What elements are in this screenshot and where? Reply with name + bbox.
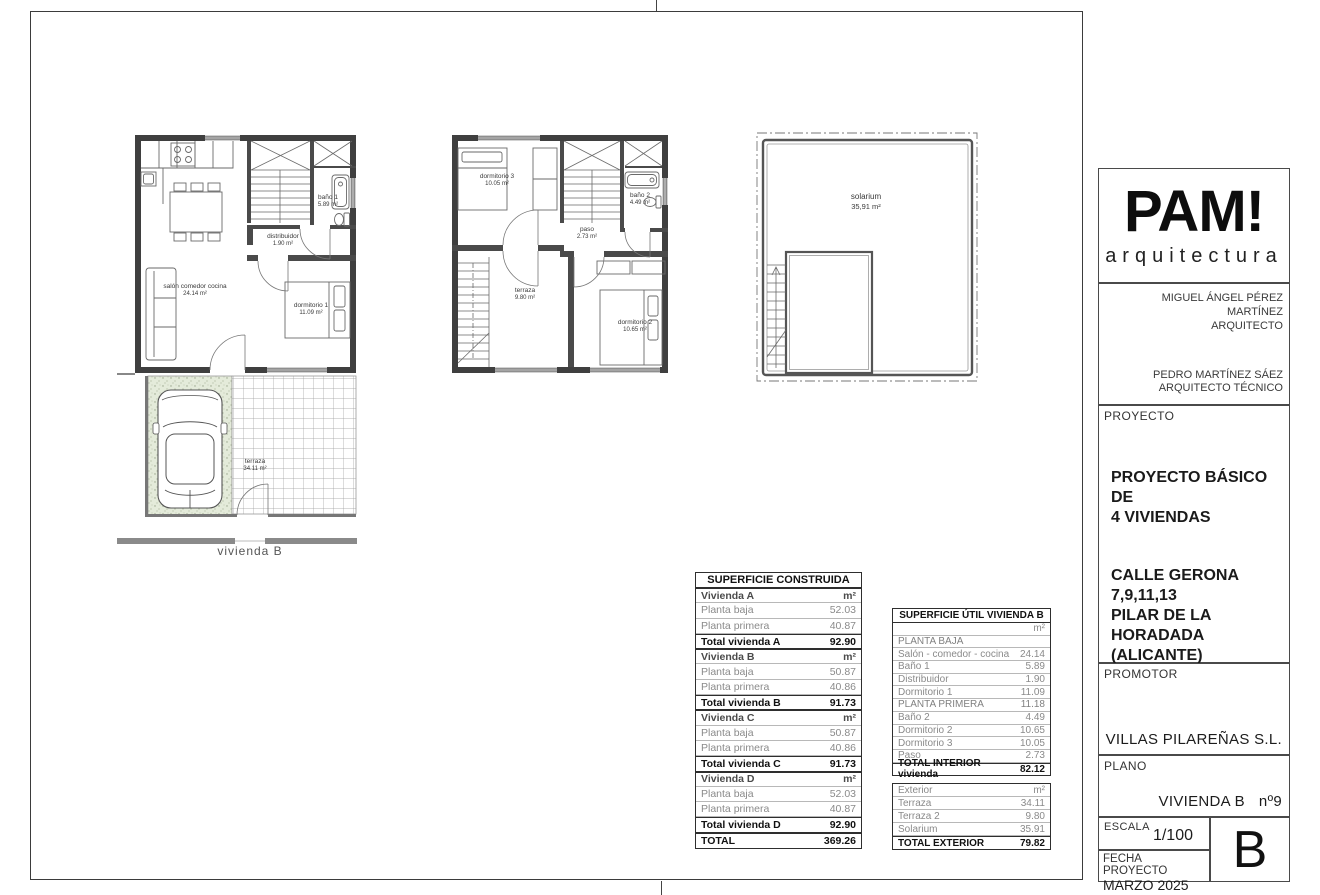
row-label: Planta primera xyxy=(701,681,769,693)
hatch-box xyxy=(625,141,662,166)
proyecto-content: PROYECTO BÁSICO DE 4 VIVIENDAS CALLE GER… xyxy=(1111,468,1289,666)
row-label: Vivienda C xyxy=(701,712,755,724)
row-label: Vivienda D xyxy=(701,773,755,785)
solarium-plan xyxy=(750,125,985,390)
table-row: Planta baja50.87 xyxy=(696,664,861,679)
exterior-walls xyxy=(135,135,356,373)
row-label: Planta baja xyxy=(701,788,754,800)
floor-plan-planta-baja xyxy=(113,128,373,560)
kitchen-counter xyxy=(141,141,233,204)
row-value: 92.90 xyxy=(830,819,856,831)
promotor-value: VILLAS PILAREÑAS S.L. xyxy=(1106,731,1282,748)
row-label: PLANTA PRIMERA xyxy=(898,699,984,710)
proyecto-label: PROYECTO xyxy=(1104,409,1174,423)
stair-void xyxy=(786,252,872,373)
row-value: m² xyxy=(843,651,856,663)
room-label-distribuidor: distribuidor 1.90 m² xyxy=(248,233,318,248)
table-row: Vivienda Cm² xyxy=(696,710,861,725)
row-label: Planta primera xyxy=(701,803,769,815)
table-row: TOTAL EXTERIOR79.82 xyxy=(893,836,1050,849)
address-line: CALLE GERONA xyxy=(1111,566,1289,586)
table-row: Terraza34.11 xyxy=(893,797,1050,810)
table-row: Solarium35.91 xyxy=(893,823,1050,836)
row-value: m² xyxy=(1033,785,1045,796)
address-line: 7,9,11,13 xyxy=(1111,586,1289,606)
plan-caption-vivienda-b: vivienda B xyxy=(195,544,305,558)
table-superficie-construida: SUPERFICIE CONSTRUIDA Vivienda Am² Plant… xyxy=(695,572,862,849)
tiled-terrace xyxy=(232,376,356,514)
table-row: TOTAL369.26 xyxy=(696,833,861,848)
table-title: SUPERFICIE ÚTIL VIVIENDA B xyxy=(893,609,1050,623)
row-label: Total vivienda B xyxy=(701,697,781,709)
stairs xyxy=(564,141,620,223)
row-value: 34.11 xyxy=(1021,798,1045,809)
escala-box: ESCALA 1/100 xyxy=(1098,817,1210,850)
row-value: 40.86 xyxy=(830,681,856,693)
row-value: 35.91 xyxy=(1020,824,1045,835)
row-value: 369.26 xyxy=(824,835,856,847)
table-row: Vivienda Dm² xyxy=(696,772,861,787)
car-drawing xyxy=(153,390,227,508)
row-label: Distribuidor xyxy=(898,674,949,685)
row-value: m² xyxy=(1033,623,1045,634)
room-label-bano2: baño 2 4.49 m² xyxy=(605,192,675,207)
table-row: Terraza 29.80 xyxy=(893,810,1050,823)
row-label: Terraza xyxy=(898,798,931,809)
promotor-box: PROMOTOR VILLAS PILAREÑAS S.L. xyxy=(1098,663,1290,755)
row-label: Planta baja xyxy=(701,727,754,739)
table-row: Dormitorio 310.05 xyxy=(893,737,1050,750)
fecha-value: MARZO 2025 xyxy=(1103,877,1205,893)
row-value: 40.86 xyxy=(830,742,856,754)
table-row: PLANTA PRIMERA11.18 xyxy=(893,699,1050,712)
architects-box: MIGUEL ÁNGEL PÉREZ MARTÍNEZ ARQUITECTO P… xyxy=(1098,283,1290,405)
tech-architect-role: ARQUITECTO TÉCNICO xyxy=(1153,382,1283,396)
table-title: SUPERFICIE CONSTRUIDA xyxy=(696,573,861,588)
row-label: Solarium xyxy=(898,824,937,835)
row-label: Baño 2 xyxy=(898,712,930,723)
row-value: 4.49 xyxy=(1026,712,1045,723)
row-value: m² xyxy=(843,590,856,602)
architect-entry: MIGUEL ÁNGEL PÉREZ MARTÍNEZ ARQUITECTO xyxy=(1105,292,1283,333)
drawing-sheet: { "plans": { "planta_baja": { "salon": {… xyxy=(0,0,1320,895)
fold-mark-bottom xyxy=(661,881,662,895)
table-row: Exteriorm² xyxy=(893,784,1050,797)
row-label: Planta baja xyxy=(701,604,754,616)
promotor-label: PROMOTOR xyxy=(1104,667,1178,681)
room-label-dormitorio1: dormitorio 1 11.09 m² xyxy=(276,302,346,317)
terrace-stairs xyxy=(458,257,489,367)
row-value: 50.87 xyxy=(830,727,856,739)
row-label: Vivienda B xyxy=(701,651,755,663)
table-row: Baño 15.89 xyxy=(893,661,1050,674)
table-row: Planta baja52.03 xyxy=(696,603,861,618)
escala-value: 1/100 xyxy=(1153,827,1193,845)
table-row: Vivienda Bm² xyxy=(696,649,861,664)
architect-role: ARQUITECTO xyxy=(1105,320,1283,334)
row-value: 10.65 xyxy=(1020,725,1045,736)
row-label: Planta primera xyxy=(701,620,769,632)
plano-value: VIVIENDA Bnº9 xyxy=(1159,793,1282,810)
door-arcs xyxy=(503,210,650,287)
table-row: PLANTA BAJA xyxy=(893,636,1050,649)
table-row: Vivienda Am² xyxy=(696,588,861,603)
table-row: Dormitorio 210.65 xyxy=(893,725,1050,738)
room-label-solarium: solarium 35,91 m² xyxy=(831,192,901,211)
plano-name: VIVIENDA B xyxy=(1159,793,1245,810)
row-value: m² xyxy=(843,773,856,785)
fold-mark-top xyxy=(656,0,657,11)
table-row: Baño 24.49 xyxy=(893,712,1050,725)
row-label: Planta baja xyxy=(701,666,754,678)
fecha-box: FECHA PROYECTO MARZO 2025 xyxy=(1098,850,1210,882)
sofa xyxy=(146,268,176,360)
row-label: Salón - comedor - cocina xyxy=(898,649,1009,660)
row-label: TOTAL EXTERIOR xyxy=(898,838,984,849)
plano-box: PLANO VIVIENDA Bnº9 xyxy=(1098,755,1290,817)
row-label: Dormitorio 3 xyxy=(898,738,952,749)
door-arcs xyxy=(210,229,330,370)
row-label: Exterior xyxy=(898,785,932,796)
spacer xyxy=(1111,528,1289,566)
row-value: 40.87 xyxy=(830,620,856,632)
room-label-salon: salón comedor cocina 24.14 m² xyxy=(160,283,230,298)
plano-number: nº9 xyxy=(1259,793,1282,810)
row-label: Total vivienda D xyxy=(701,819,781,831)
room-label-terraza-pb: terraza 34.11 m² xyxy=(220,458,290,473)
address-line: PILAR DE LA HORADADA xyxy=(1111,606,1289,646)
row-value: 92.90 xyxy=(830,636,856,648)
tech-architect-name: PEDRO MARTÍNEZ SÁEZ xyxy=(1153,369,1283,383)
row-label: Dormitorio 2 xyxy=(898,725,952,736)
technical-architect-entry: PEDRO MARTÍNEZ SÁEZ ARQUITECTO TÉCNICO xyxy=(1153,369,1283,397)
table-row: m² xyxy=(893,623,1050,636)
logo-arquitectura: arquitectura xyxy=(1099,245,1289,268)
row-label: PLANTA BAJA xyxy=(898,636,963,647)
row-value: 5.89 xyxy=(1026,661,1045,672)
floor-plan-planta-primera xyxy=(445,128,680,383)
room-label-terraza-pp: terraza 9.80 m² xyxy=(490,287,560,302)
table-row: Planta primera40.86 xyxy=(696,680,861,695)
row-value: 52.03 xyxy=(830,604,856,616)
proyecto-line: 4 VIVIENDAS xyxy=(1111,508,1289,528)
table-row: Salón - comedor - cocina24.14 xyxy=(893,648,1050,661)
row-value: 24.14 xyxy=(1020,649,1045,660)
table-row: Planta baja50.87 xyxy=(696,726,861,741)
dining-table xyxy=(170,183,222,241)
room-label-paso: paso 2.73 m² xyxy=(552,226,622,241)
row-value: 91.73 xyxy=(830,697,856,709)
table-row: Total vivienda B91.73 xyxy=(696,695,861,710)
logo-pam: PAM! xyxy=(1099,183,1289,241)
row-label: Planta primera xyxy=(701,742,769,754)
row-label: TOTAL INTERIOR vivienda xyxy=(898,758,1020,780)
hatch-box xyxy=(314,141,352,166)
proyecto-line: PROYECTO BÁSICO DE xyxy=(1111,468,1289,508)
row-label: Dormitorio 1 xyxy=(898,687,952,698)
row-value: 1.90 xyxy=(1026,674,1045,685)
plano-label: PLANO xyxy=(1104,759,1147,773)
table-superficie-exterior: Exteriorm² Terraza34.11 Terraza 29.80 So… xyxy=(892,783,1051,850)
architect-name: MIGUEL ÁNGEL PÉREZ MARTÍNEZ xyxy=(1105,292,1283,320)
row-value: 10.05 xyxy=(1020,738,1045,749)
room-label-bano1: baño 1 5.89 m² xyxy=(293,194,363,209)
table-row: Planta baja52.03 xyxy=(696,787,861,802)
table-row: Total vivienda D92.90 xyxy=(696,817,861,832)
row-label: Total vivienda A xyxy=(701,636,780,648)
fecha-label: FECHA PROYECTO xyxy=(1103,853,1205,877)
table-row: Planta primera40.86 xyxy=(696,741,861,756)
room-label-dormitorio3: dormitorio 3 10.05 m² xyxy=(462,173,532,188)
table-row: Planta primera40.87 xyxy=(696,802,861,817)
bed-dormitorio-2 xyxy=(597,261,665,365)
sheet-letter: B xyxy=(1210,817,1290,882)
row-value: 79.82 xyxy=(1020,838,1045,849)
row-value: m² xyxy=(843,712,856,724)
table-row: Distribuidor1.90 xyxy=(893,674,1050,687)
row-value: 50.87 xyxy=(830,666,856,678)
table-row: TOTAL INTERIOR vivienda82.12 xyxy=(893,763,1050,776)
row-label: Vivienda A xyxy=(701,590,754,602)
row-value: 11.18 xyxy=(1021,699,1045,710)
table-superficie-util: SUPERFICIE ÚTIL VIVIENDA B m² PLANTA BAJ… xyxy=(892,608,1051,776)
table-row: Total vivienda C91.73 xyxy=(696,756,861,771)
table-row: Dormitorio 111.09 xyxy=(893,686,1050,699)
row-label: Baño 1 xyxy=(898,661,930,672)
row-value: 11.09 xyxy=(1021,687,1045,698)
row-value: 52.03 xyxy=(830,788,856,800)
row-value: 91.73 xyxy=(830,758,856,770)
row-label: Terraza 2 xyxy=(898,811,940,822)
row-label: TOTAL xyxy=(701,835,735,847)
row-value: 9.80 xyxy=(1026,811,1045,822)
table-row: Planta primera40.87 xyxy=(696,619,861,634)
row-value: 2.73 xyxy=(1026,750,1045,761)
logo-box: PAM! arquitectura xyxy=(1098,168,1290,283)
stairs xyxy=(251,141,310,223)
room-label-dormitorio2: dormitorio 2 10.65 m² xyxy=(600,319,670,334)
row-value: 82.12 xyxy=(1020,764,1045,775)
row-value: 40.87 xyxy=(830,803,856,815)
escala-label: ESCALA xyxy=(1104,821,1150,833)
row-label: Total vivienda C xyxy=(701,758,781,770)
proyecto-box: PROYECTO PROYECTO BÁSICO DE 4 VIVIENDAS … xyxy=(1098,405,1290,663)
table-row: Total vivienda A92.90 xyxy=(696,634,861,649)
